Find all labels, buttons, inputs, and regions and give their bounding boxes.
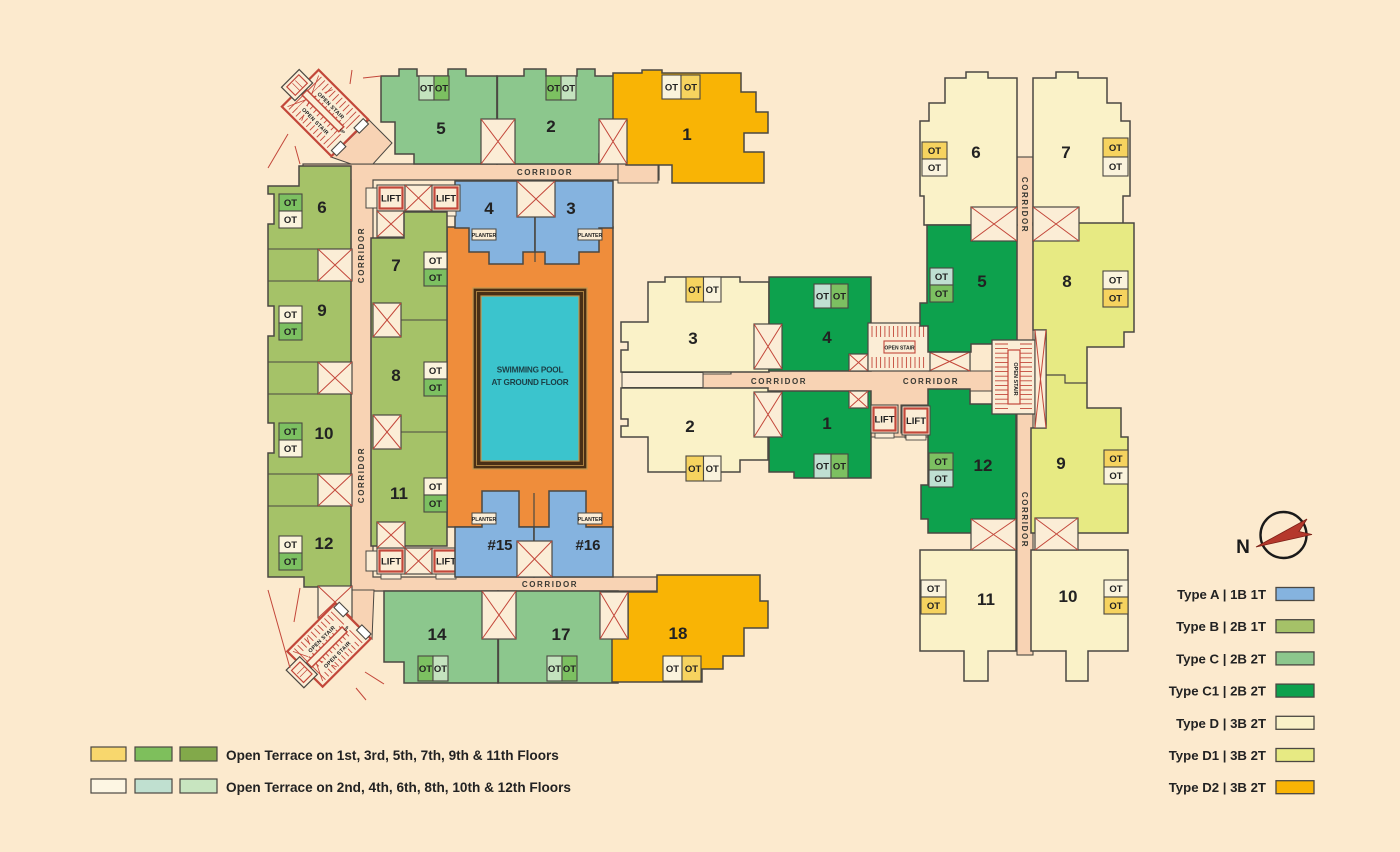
svg-text:LIFT: LIFT (381, 557, 401, 568)
svg-text:OT: OT (706, 464, 719, 475)
svg-text:OT: OT (1109, 601, 1122, 612)
svg-text:OT: OT (928, 163, 941, 174)
svg-text:11: 11 (977, 590, 995, 609)
svg-text:1: 1 (682, 125, 691, 144)
svg-text:OT: OT (1109, 454, 1122, 465)
svg-text:OT: OT (1109, 294, 1122, 305)
svg-text:CORRIDOR: CORRIDOR (517, 168, 573, 177)
svg-text:14: 14 (428, 625, 447, 644)
svg-text:OT: OT (284, 540, 297, 551)
svg-text:PLANTER: PLANTER (578, 233, 603, 239)
svg-text:LIFT: LIFT (436, 194, 456, 205)
svg-text:OT: OT (434, 664, 447, 675)
svg-text:OT: OT (706, 285, 719, 296)
svg-text:#16: #16 (575, 537, 600, 554)
svg-text:5: 5 (436, 119, 445, 138)
svg-text:LIFT: LIFT (874, 415, 894, 426)
svg-text:3: 3 (688, 329, 697, 348)
svg-text:OT: OT (927, 584, 940, 595)
svg-text:AT GROUND FLOOR: AT GROUND FLOOR (492, 378, 569, 387)
svg-text:7: 7 (1061, 143, 1070, 162)
svg-text:4: 4 (484, 199, 494, 218)
svg-text:Type C | 2B 2T: Type C | 2B 2T (1176, 651, 1266, 666)
svg-text:9: 9 (1056, 454, 1065, 473)
svg-text:CORRIDOR: CORRIDOR (357, 227, 366, 283)
svg-text:OT: OT (284, 327, 297, 338)
svg-text:8: 8 (1062, 272, 1071, 291)
svg-text:OT: OT (435, 84, 448, 95)
svg-text:Type D2 | 3B 2T: Type D2 | 3B 2T (1169, 780, 1266, 795)
svg-text:OT: OT (935, 289, 948, 300)
svg-text:OT: OT (688, 285, 701, 296)
svg-text:7: 7 (391, 256, 400, 275)
svg-text:OT: OT (562, 84, 575, 95)
svg-text:CORRIDOR: CORRIDOR (357, 447, 366, 503)
svg-text:OT: OT (1109, 276, 1122, 287)
svg-text:OT: OT (429, 499, 442, 510)
svg-text:CORRIDOR: CORRIDOR (903, 377, 959, 386)
svg-text:CORRIDOR: CORRIDOR (522, 580, 578, 589)
svg-text:OT: OT (833, 292, 846, 303)
svg-text:PLANTER: PLANTER (472, 517, 497, 523)
svg-text:OT: OT (665, 83, 678, 94)
svg-text:OPEN STAIR: OPEN STAIR (1012, 362, 1018, 395)
svg-text:Type D | 3B 2T: Type D | 3B 2T (1176, 716, 1266, 731)
svg-text:OT: OT (284, 310, 297, 321)
svg-text:OT: OT (429, 383, 442, 394)
svg-text:Type C1 | 2B 2T: Type C1 | 2B 2T (1169, 684, 1266, 699)
svg-text:N: N (1236, 537, 1250, 558)
svg-text:OT: OT (685, 664, 698, 675)
svg-text:OT: OT (1109, 143, 1122, 154)
svg-text:OT: OT (548, 664, 561, 675)
svg-text:OT: OT (284, 557, 297, 568)
svg-text:Open Terrace on 1st, 3rd, 5th,: Open Terrace on 1st, 3rd, 5th, 7th, 9th … (226, 748, 559, 763)
svg-text:4: 4 (822, 328, 832, 347)
svg-text:OT: OT (1109, 162, 1122, 173)
svg-text:OT: OT (284, 444, 297, 455)
svg-text:CORRIDOR: CORRIDOR (1020, 492, 1029, 548)
svg-text:OT: OT (429, 482, 442, 493)
svg-text:OT: OT (927, 601, 940, 612)
svg-text:#15: #15 (487, 537, 512, 554)
svg-text:OT: OT (688, 464, 701, 475)
svg-text:OT: OT (563, 664, 576, 675)
svg-text:OT: OT (816, 292, 829, 303)
svg-text:OT: OT (419, 664, 432, 675)
svg-text:CORRIDOR: CORRIDOR (1020, 177, 1029, 233)
svg-text:OT: OT (547, 84, 560, 95)
svg-text:18: 18 (669, 624, 688, 643)
svg-text:OT: OT (935, 272, 948, 283)
svg-text:OT: OT (429, 273, 442, 284)
svg-text:OT: OT (429, 256, 442, 267)
svg-text:Open Terrace on 2nd, 4th, 6th,: Open Terrace on 2nd, 4th, 6th, 8th, 10th… (226, 780, 571, 795)
svg-text:17: 17 (552, 625, 571, 644)
svg-text:9: 9 (317, 301, 326, 320)
svg-text:OT: OT (928, 146, 941, 157)
svg-text:LIFT: LIFT (906, 416, 926, 427)
svg-text:3: 3 (566, 199, 575, 218)
svg-text:OT: OT (666, 664, 679, 675)
svg-text:11: 11 (390, 484, 408, 503)
svg-text:OT: OT (284, 215, 297, 226)
svg-text:OT: OT (1109, 584, 1122, 595)
svg-text:2: 2 (546, 117, 555, 136)
svg-text:5: 5 (977, 272, 986, 291)
svg-text:10: 10 (315, 424, 334, 443)
svg-text:OT: OT (833, 462, 846, 473)
svg-text:SWIMMING POOL: SWIMMING POOL (497, 366, 564, 375)
svg-text:PLANTER: PLANTER (578, 517, 603, 523)
svg-text:CORRIDOR: CORRIDOR (751, 377, 807, 386)
svg-text:6: 6 (971, 143, 980, 162)
svg-text:10: 10 (1059, 587, 1078, 606)
svg-text:6: 6 (317, 198, 326, 217)
svg-text:OPEN STAIR: OPEN STAIR (884, 346, 915, 352)
svg-text:Type B | 2B 1T: Type B | 2B 1T (1176, 619, 1266, 634)
svg-text:OT: OT (684, 83, 697, 94)
svg-text:OT: OT (934, 457, 947, 468)
svg-text:LIFT: LIFT (381, 194, 401, 205)
svg-text:Type D1 | 3B 2T: Type D1 | 3B 2T (1169, 748, 1266, 763)
svg-text:OT: OT (934, 474, 947, 485)
svg-text:12: 12 (974, 456, 993, 475)
svg-text:2: 2 (685, 417, 694, 436)
svg-text:LIFT: LIFT (436, 557, 456, 568)
svg-text:12: 12 (315, 534, 334, 553)
svg-text:8: 8 (391, 366, 400, 385)
svg-text:OT: OT (816, 462, 829, 473)
svg-text:OT: OT (420, 84, 433, 95)
svg-text:OT: OT (284, 427, 297, 438)
svg-text:PLANTER: PLANTER (472, 233, 497, 239)
svg-text:OT: OT (429, 366, 442, 377)
svg-text:OT: OT (284, 198, 297, 209)
svg-text:Type A | 1B 1T: Type A | 1B 1T (1177, 587, 1266, 602)
svg-text:OT: OT (1109, 471, 1122, 482)
svg-text:1: 1 (822, 414, 831, 433)
